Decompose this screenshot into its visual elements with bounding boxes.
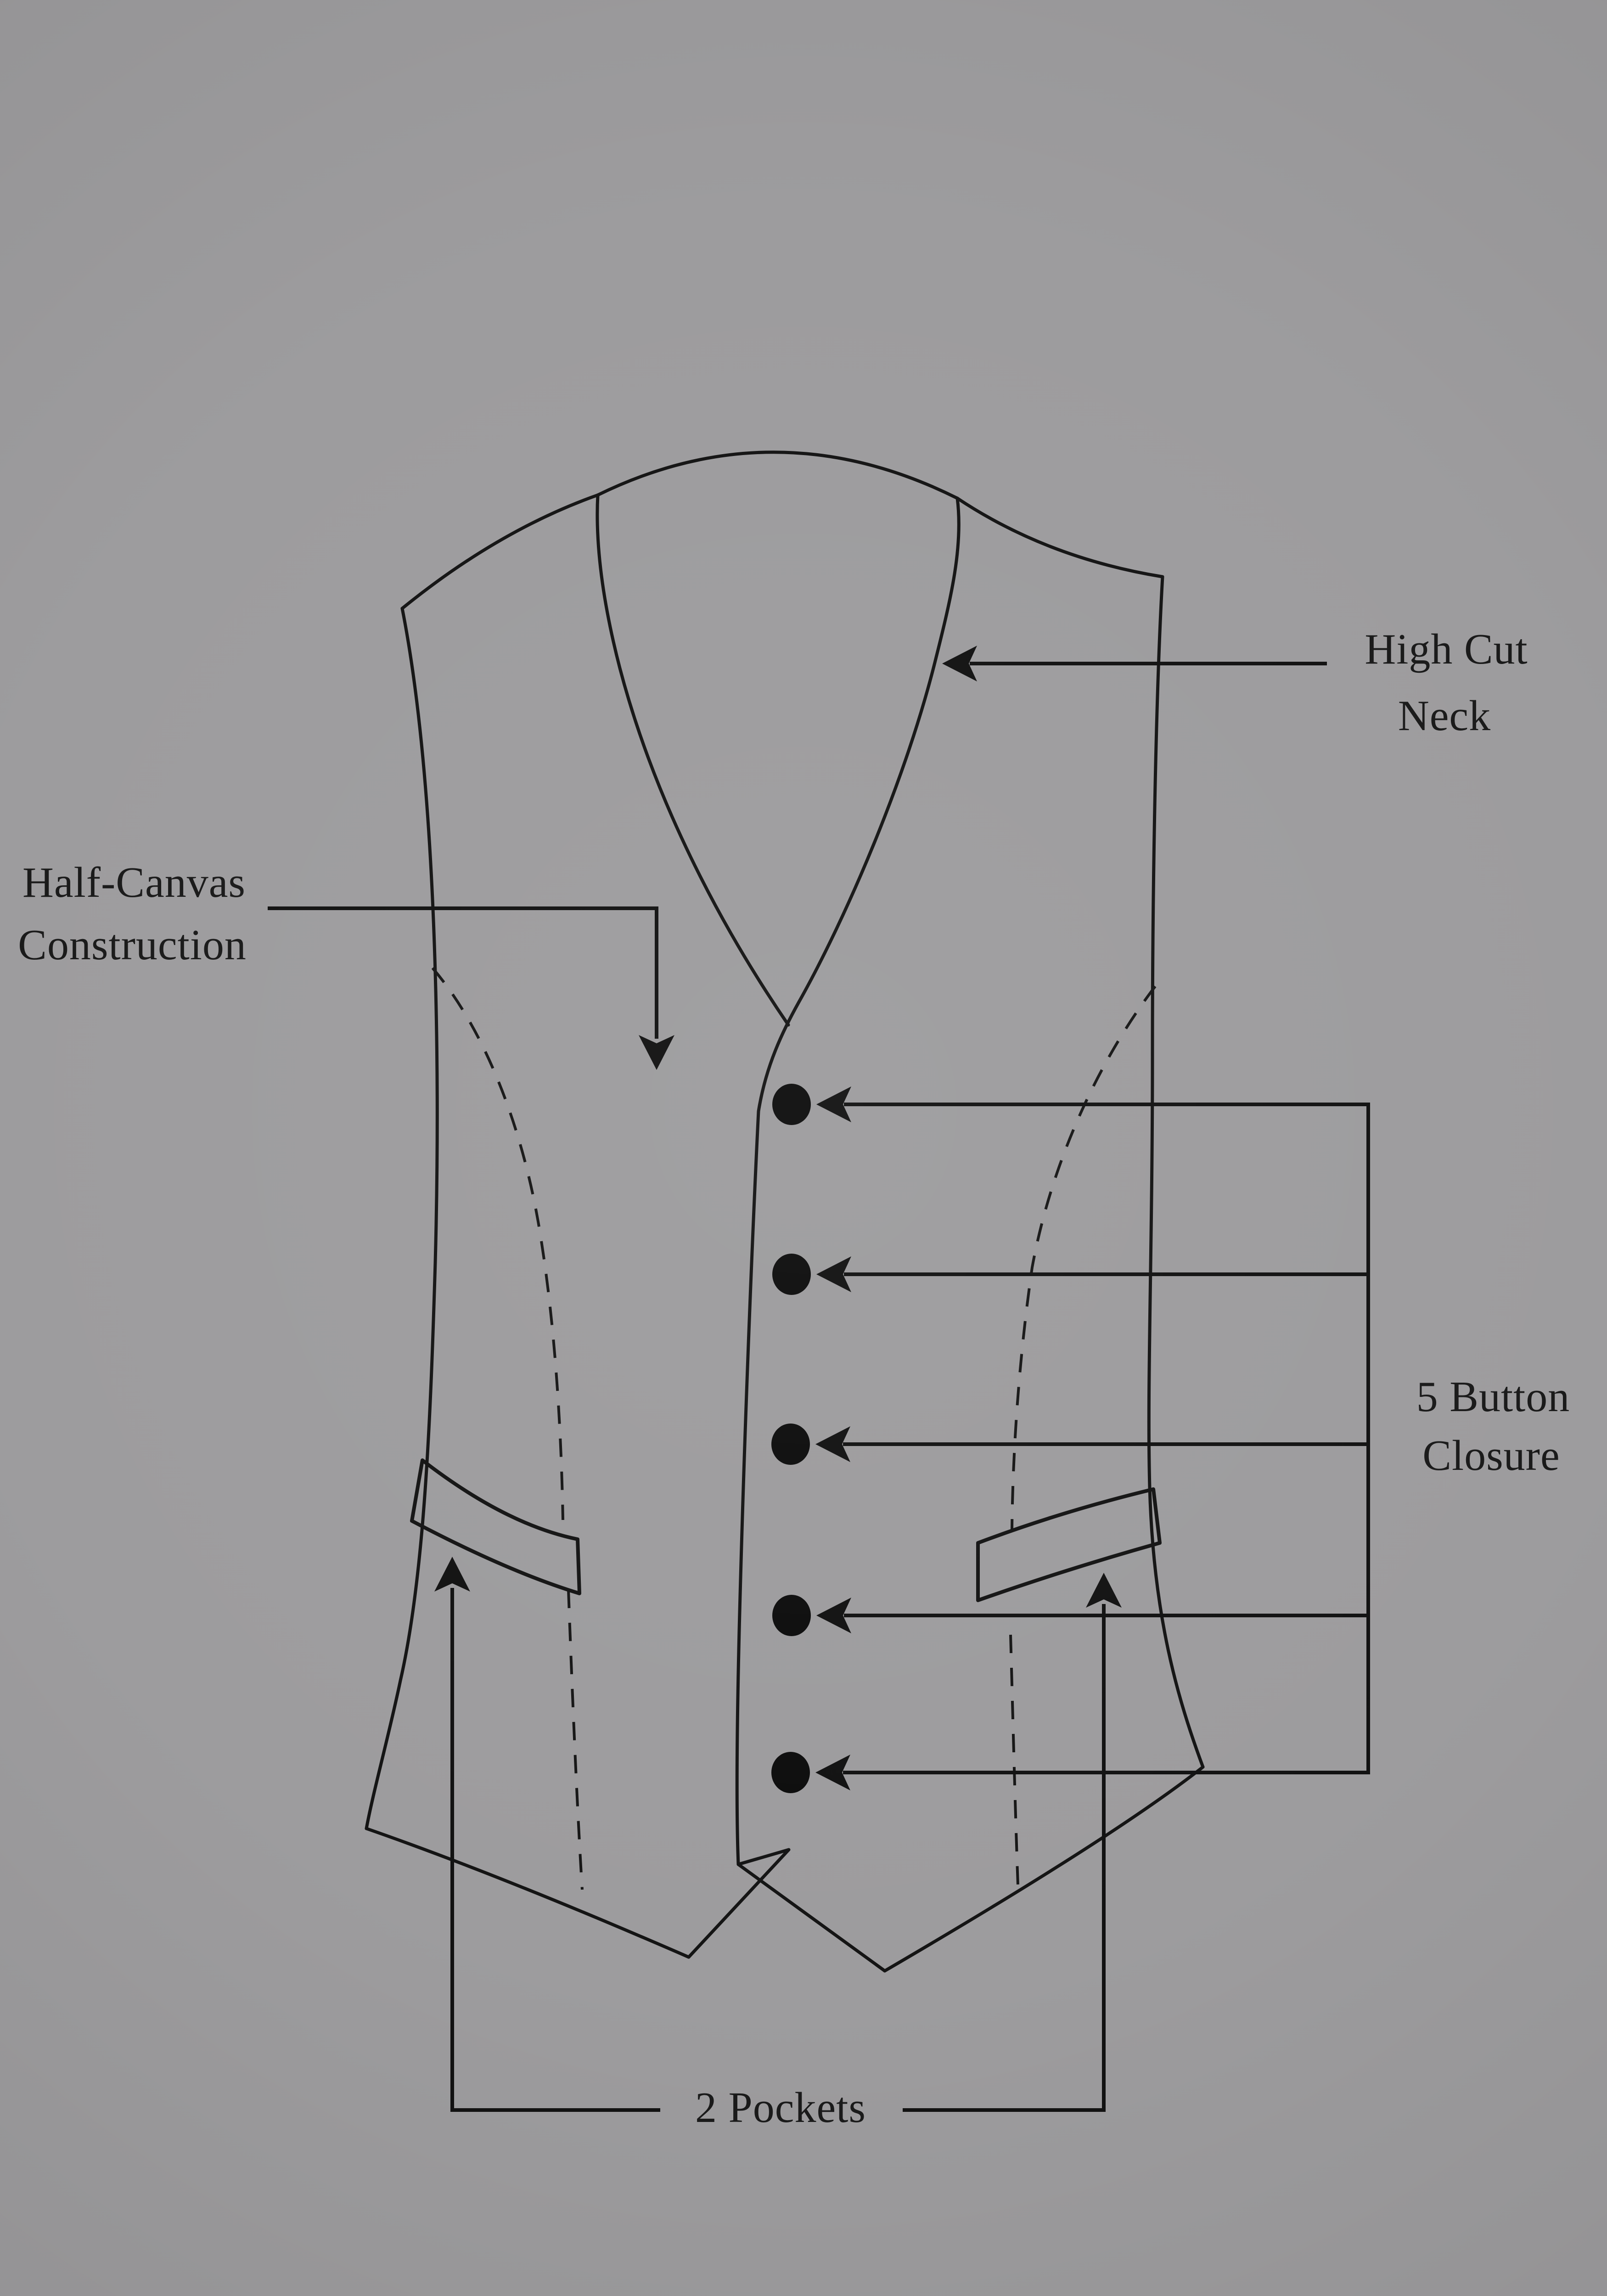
half-canvas-label-line2: Construction bbox=[18, 921, 247, 969]
diagram-canvas: High Cut Neck Half-Canvas Construction 5… bbox=[0, 0, 1607, 2296]
vest-feature-diagram: High Cut Neck Half-Canvas Construction 5… bbox=[0, 0, 1607, 2296]
annotation-high-cut-neck: High Cut Neck bbox=[942, 625, 1528, 740]
arrow-up-icon bbox=[1086, 1573, 1122, 1608]
left-shoulder-seam bbox=[402, 495, 598, 608]
right-shoulder-seam bbox=[957, 498, 1163, 577]
arrow-up-icon bbox=[434, 1557, 470, 1592]
two-pockets-label: 2 Pockets bbox=[695, 2084, 866, 2132]
button-1 bbox=[772, 1084, 811, 1125]
annotation-half-canvas-construction: Half-Canvas Construction bbox=[18, 859, 674, 1070]
half-canvas-pointer-line bbox=[268, 908, 657, 1039]
left-pocket-pointer-line bbox=[452, 1588, 660, 2110]
half-canvas-label-line1: Half-Canvas bbox=[22, 859, 246, 906]
button-4 bbox=[772, 1595, 811, 1636]
button-5 bbox=[771, 1752, 810, 1793]
left-welt-pocket bbox=[412, 1460, 579, 1593]
annotation-five-button-closure: 5 Button Closure bbox=[815, 1086, 1570, 1790]
five-button-closure-label-line2: Closure bbox=[1422, 1432, 1560, 1480]
vest-line-drawing-icon bbox=[366, 452, 1203, 1971]
left-princess-seam-upper bbox=[433, 968, 563, 1520]
annotation-two-pockets: 2 Pockets bbox=[434, 1557, 1122, 2132]
arrow-down-icon bbox=[639, 1035, 674, 1070]
high-cut-neck-label-line1: High Cut bbox=[1365, 625, 1528, 673]
back-neckline bbox=[598, 452, 957, 498]
right-neckline-and-centre-front-edge bbox=[737, 498, 959, 1971]
right-front-hem bbox=[885, 1767, 1203, 1971]
left-side-seam bbox=[366, 608, 437, 1829]
left-neckline-edge bbox=[597, 495, 788, 1025]
left-princess-seam-lower bbox=[568, 1590, 582, 1890]
right-princess-seam-upper bbox=[1012, 986, 1155, 1529]
button-column bbox=[771, 1084, 811, 1793]
right-side-seam bbox=[1149, 577, 1203, 1767]
high-cut-neck-label-line2: Neck bbox=[1398, 692, 1491, 740]
left-front-hem bbox=[366, 1829, 689, 1957]
right-welt-pocket bbox=[978, 1489, 1160, 1600]
button-3 bbox=[771, 1424, 810, 1465]
right-princess-seam-lower bbox=[1011, 1635, 1018, 1885]
five-button-closure-label-line1: 5 Button bbox=[1416, 1373, 1570, 1421]
button-2 bbox=[772, 1254, 811, 1295]
